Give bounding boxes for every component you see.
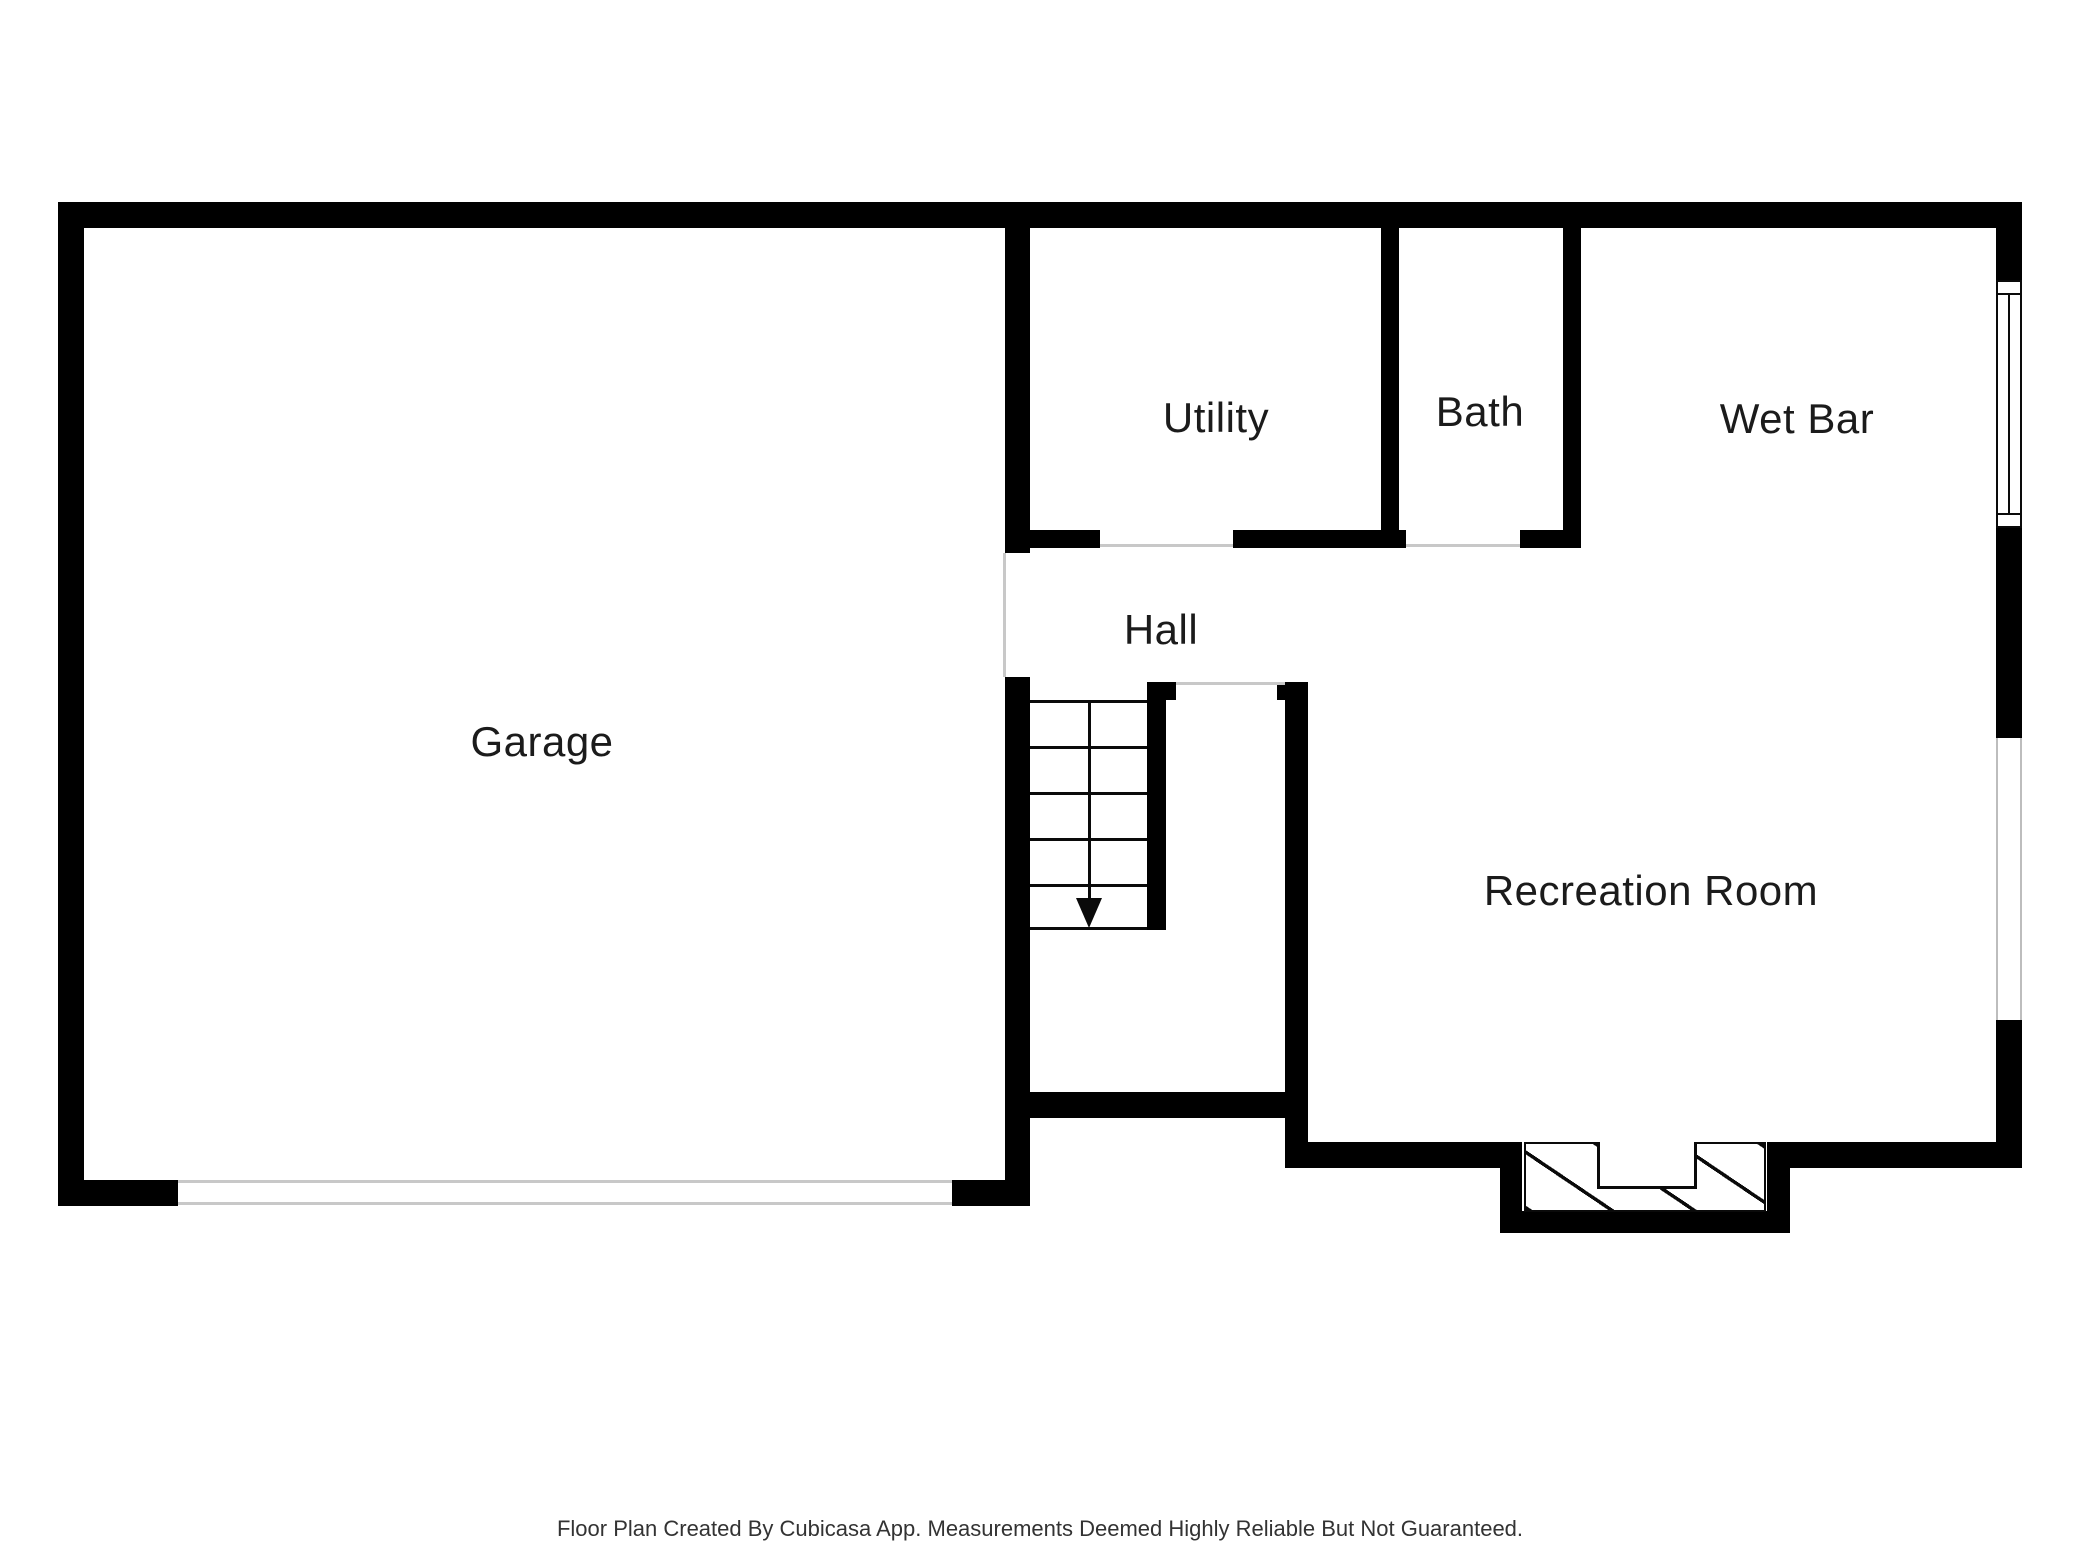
garage-door-top-line <box>178 1180 952 1183</box>
wall-fireplace-right <box>1767 1142 1790 1233</box>
wall-utility-bath-divider <box>1381 228 1399 548</box>
room-label-recreation-room: Recreation Room <box>1484 867 1818 915</box>
wall-rec-bottom-left <box>1308 1142 1522 1168</box>
room-label-hall: Hall <box>1124 606 1198 654</box>
stairs-down-arrow-icon <box>1076 898 1102 928</box>
utility-door-opening-line <box>1100 544 1233 547</box>
wall-stair-jamb <box>1166 682 1176 700</box>
garage-door-bottom-line <box>178 1202 952 1205</box>
room-label-garage: Garage <box>470 718 613 766</box>
wall-fireplace-bottom <box>1500 1211 1790 1233</box>
wall-bath-wetbar-divider <box>1563 228 1581 548</box>
room-label-utility: Utility <box>1163 394 1269 442</box>
wall-stair-right <box>1147 682 1166 930</box>
wall-hall-bottom <box>1030 1092 1285 1118</box>
wall-right-mid <box>1996 528 2022 738</box>
wall-garage-bottom-left <box>58 1180 178 1206</box>
wall-rec-bottom-right <box>1790 1142 2022 1168</box>
wall-top <box>58 202 2022 228</box>
room-label-bath: Bath <box>1436 388 1524 436</box>
wall-rec-left <box>1285 682 1308 1168</box>
wetbar-window-bottom-cap <box>1998 513 2020 515</box>
floor-plan: Garage Utility Bath Wet Bar Hall Recreat… <box>0 0 2080 1560</box>
room-label-wet-bar: Wet Bar <box>1720 395 1874 443</box>
recreation-window-opening <box>1996 738 2022 1020</box>
wall-left <box>58 202 84 1206</box>
stairs-direction-line <box>1088 700 1091 905</box>
wall-garage-right-upper <box>1005 228 1030 553</box>
rec-room-opening-line <box>1176 682 1285 685</box>
garage-hall-opening-line <box>1003 553 1006 677</box>
wall-utility-bottom-left <box>1030 530 1100 548</box>
wall-right-upper <box>1996 228 2022 280</box>
wetbar-window <box>1996 280 2022 528</box>
wall-garage-right-lower <box>1005 677 1030 1206</box>
wetbar-window-mullion <box>2008 295 2010 513</box>
bath-door-opening-line <box>1406 544 1520 547</box>
fireplace-firebox <box>1597 1142 1697 1189</box>
footer-disclaimer: Floor Plan Created By Cubicasa App. Meas… <box>0 1516 2080 1542</box>
